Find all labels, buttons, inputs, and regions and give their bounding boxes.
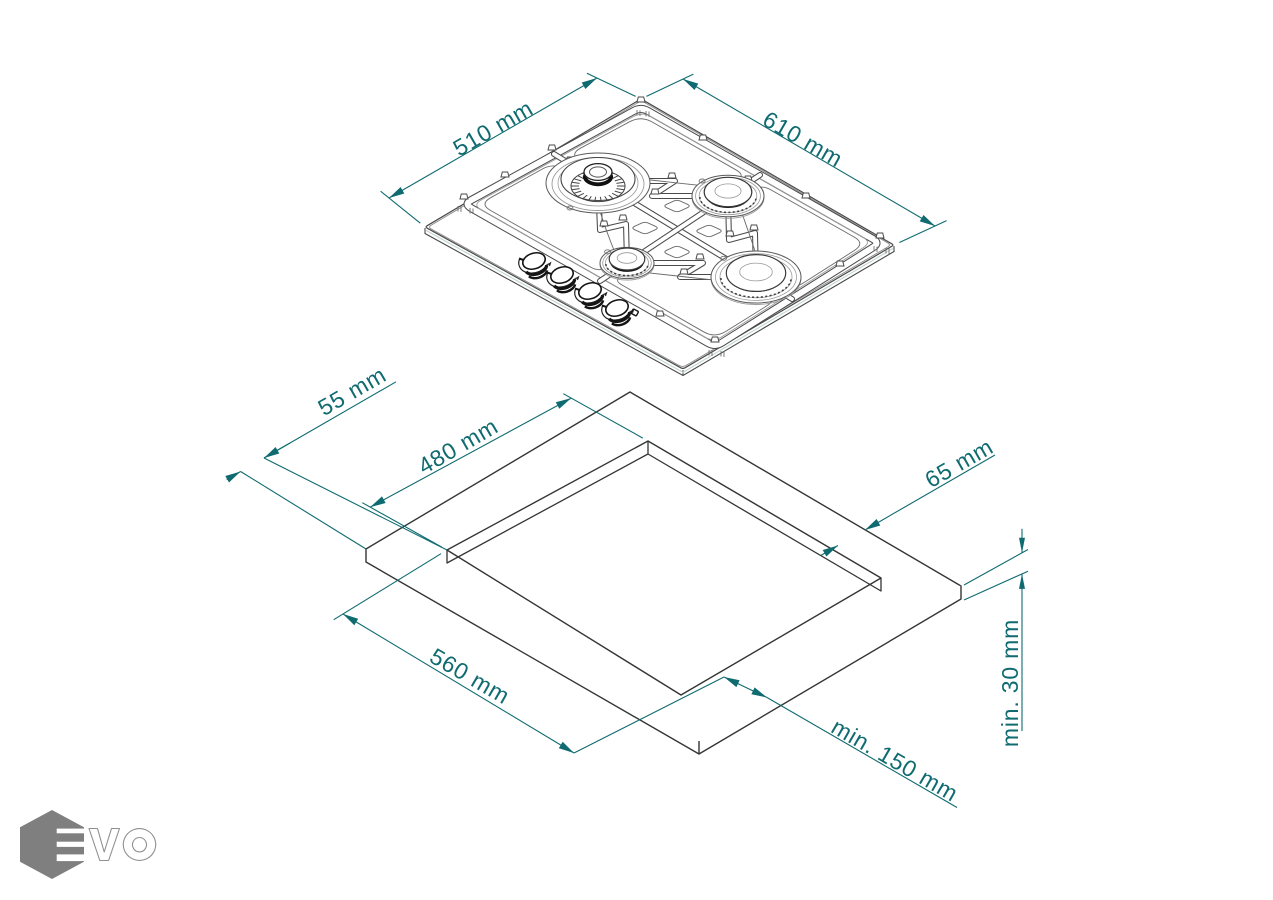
svg-text:min. 30 mm: min. 30 mm	[997, 619, 1023, 747]
